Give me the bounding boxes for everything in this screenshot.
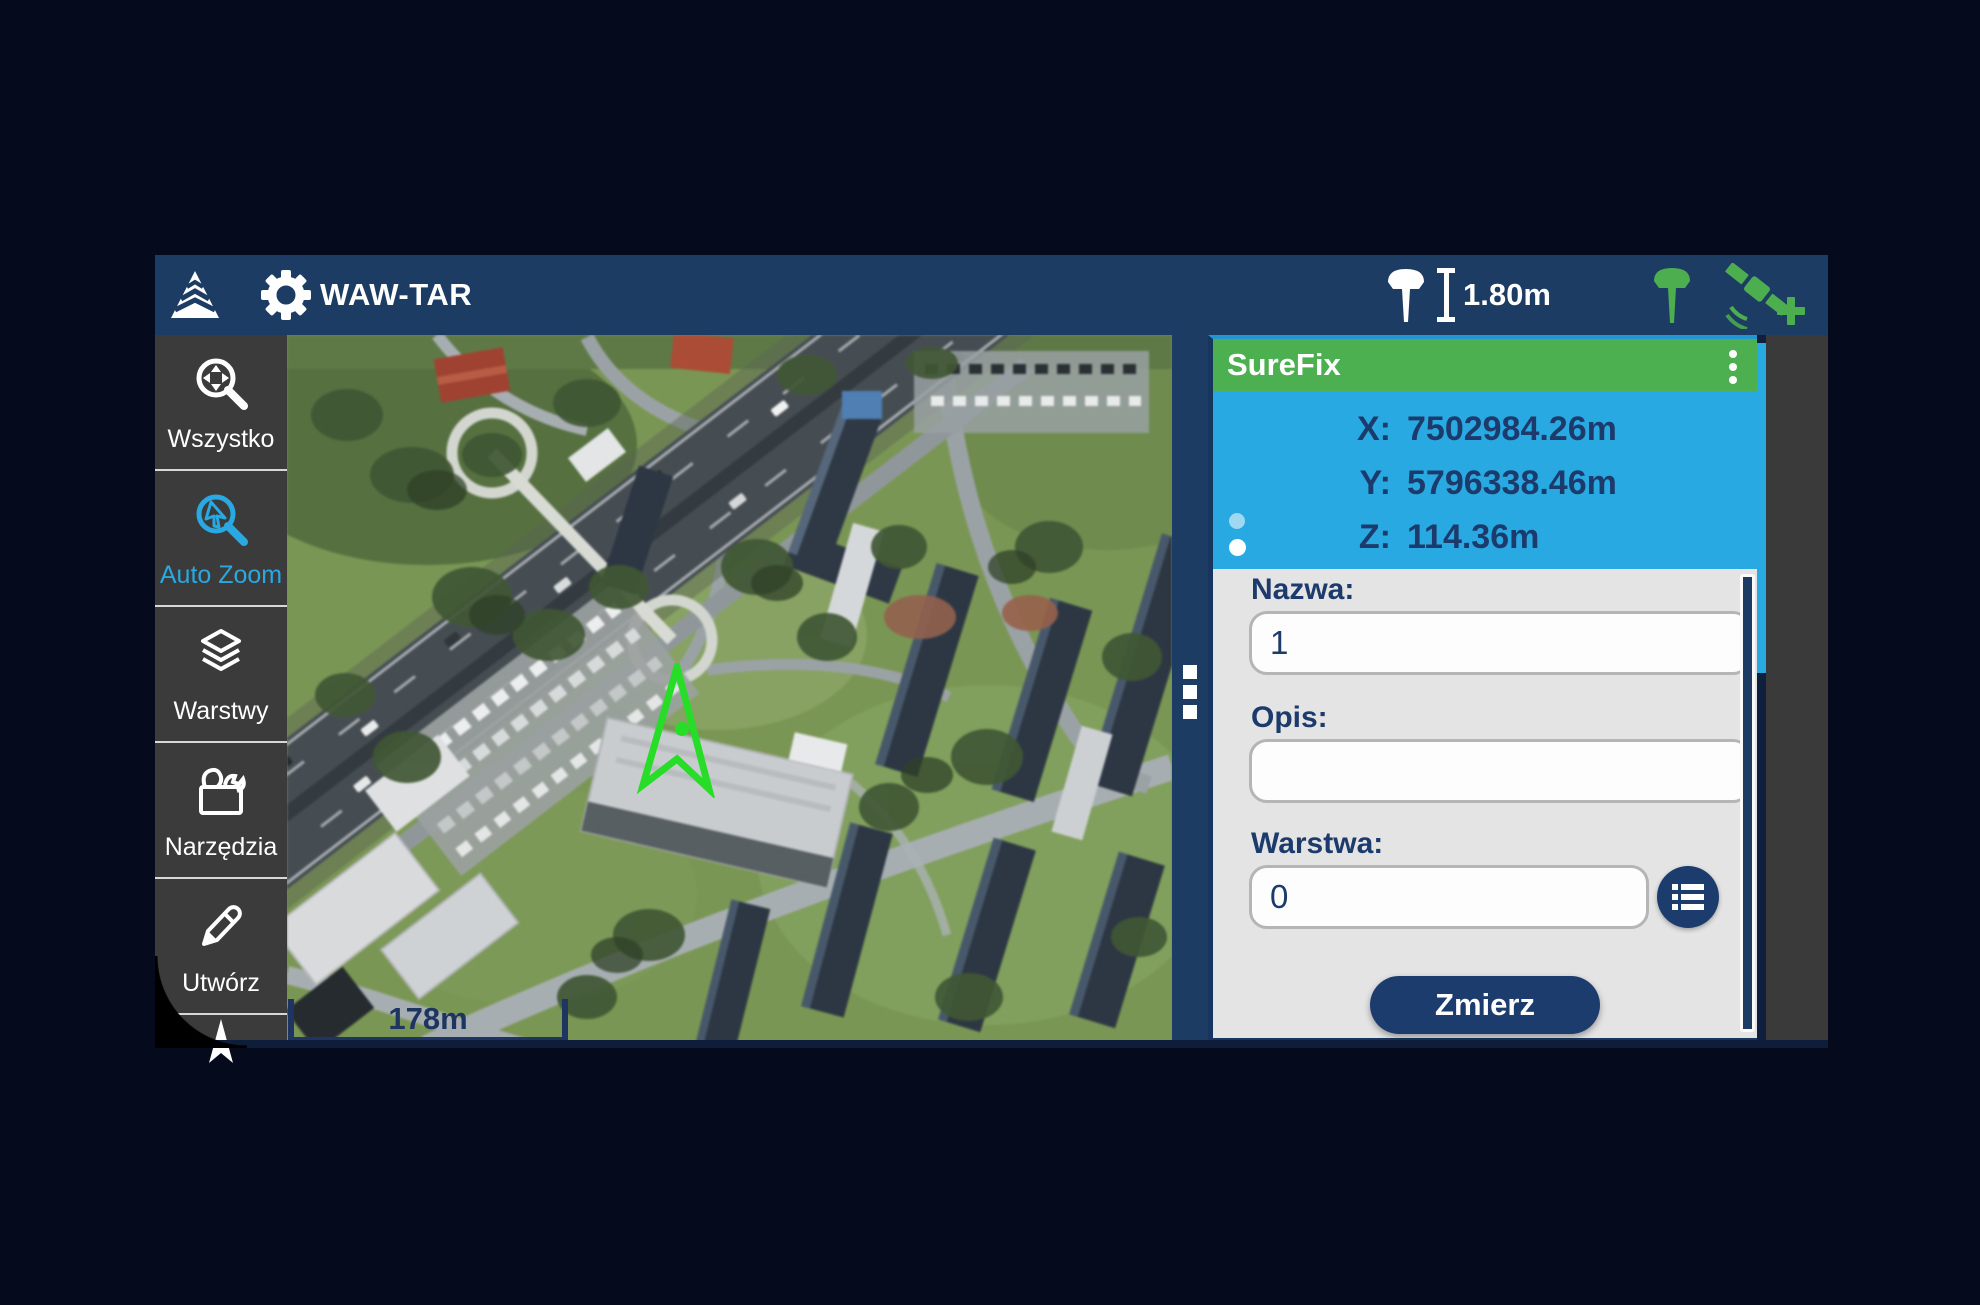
- description-input[interactable]: [1249, 739, 1751, 803]
- sidebar-item-narzedzia[interactable]: Narzędzia: [155, 743, 287, 879]
- coord-y-value: 5796338.46m: [1407, 464, 1617, 503]
- coordinates-box: X: 7502984.26m Y: 5796338.46m Z: 114.36m: [1213, 391, 1757, 569]
- gear-icon: [261, 270, 311, 320]
- pencil-icon: [189, 895, 253, 959]
- map-scale-label: 178m: [388, 1001, 467, 1037]
- coord-y-label: Y:: [1213, 464, 1391, 503]
- screen-background: WAW-TAR 1.80m: [0, 0, 1980, 1305]
- receiver-status-icon[interactable]: [1649, 265, 1695, 325]
- panel-title: SureFix: [1227, 347, 1341, 383]
- coordinate-row-y: Y: 5796338.46m: [1213, 457, 1757, 509]
- app-bottom-border: [155, 1040, 1828, 1048]
- sidebar-item-compass[interactable]: [155, 1015, 287, 1063]
- sidebar-item-wszystko[interactable]: Wszystko: [155, 335, 287, 471]
- gnss-pole-icon: [1383, 266, 1429, 324]
- sidebar-item-auto-zoom[interactable]: Auto Zoom: [155, 471, 287, 607]
- name-input[interactable]: [1249, 611, 1751, 675]
- project-selector[interactable]: WAW-TAR: [261, 270, 472, 320]
- antenna-height-value: 1.80m: [1463, 277, 1551, 313]
- project-title: WAW-TAR: [320, 277, 472, 313]
- panel-divider: [1172, 335, 1208, 1048]
- map-scale-bar: 178m: [288, 999, 568, 1043]
- position-marker: [635, 663, 725, 798]
- surefix-panel: SureFix X: 7502984.26m Y: 5796338.46m Z:…: [1208, 335, 1757, 1048]
- app-window: WAW-TAR 1.80m: [155, 255, 1828, 1048]
- panel-drag-handle[interactable]: [1183, 665, 1197, 719]
- brand-pyramid-logo-icon[interactable]: [169, 268, 221, 320]
- side-tab-strip: [1766, 335, 1828, 1048]
- sidebar-label: Wszystko: [168, 425, 275, 454]
- point-form: Nazwa: Opis: Warstwa: Zmierz: [1213, 569, 1757, 1048]
- panel-menu-button[interactable]: [1723, 348, 1743, 386]
- layers-icon: [189, 623, 253, 687]
- sidebar-label: Warstwy: [174, 697, 269, 726]
- satellite-imagery: [287, 335, 1172, 1048]
- name-label: Nazwa:: [1251, 573, 1354, 607]
- sidebar-label: Narzędzia: [165, 833, 278, 862]
- coord-x-value: 7502984.26m: [1407, 410, 1617, 449]
- sidebar-item-utworz[interactable]: Utwórz: [155, 879, 287, 1015]
- sidebar-label: Auto Zoom: [160, 561, 282, 590]
- zoom-all-icon: [189, 351, 253, 415]
- panel-header: SureFix: [1213, 339, 1757, 391]
- sidebar-item-warstwy[interactable]: Warstwy: [155, 607, 287, 743]
- coord-z-value: 114.36m: [1407, 518, 1539, 557]
- toolbox-icon: [189, 759, 253, 823]
- auto-zoom-icon: [189, 487, 253, 551]
- measure-button[interactable]: Zmierz: [1370, 976, 1600, 1034]
- coord-x-label: X:: [1213, 410, 1391, 449]
- coordinate-row-z: Z: 114.36m: [1213, 511, 1757, 563]
- top-bar: WAW-TAR 1.80m: [155, 255, 1828, 335]
- layer-label: Warstwa:: [1251, 827, 1383, 861]
- height-bar-icon: [1435, 266, 1457, 324]
- map-view[interactable]: 178m: [287, 335, 1172, 1048]
- layer-list-button[interactable]: [1657, 866, 1719, 928]
- coord-status-dots-icon: [1229, 513, 1246, 556]
- sidebar-label: Utwórz: [182, 969, 260, 998]
- layer-input[interactable]: [1249, 865, 1649, 929]
- list-icon: [1671, 882, 1705, 912]
- description-label: Opis:: [1251, 701, 1328, 735]
- add-satellite-connection-icon[interactable]: [1719, 263, 1807, 329]
- active-tab-indicator: [1757, 343, 1766, 673]
- antenna-height-button[interactable]: 1.80m: [1383, 266, 1551, 324]
- form-scrollbar[interactable]: [1740, 574, 1755, 1032]
- sidebar: Wszystko Auto Zoom Warstwy Na: [155, 335, 287, 1048]
- coordinate-row-x: X: 7502984.26m: [1213, 403, 1757, 455]
